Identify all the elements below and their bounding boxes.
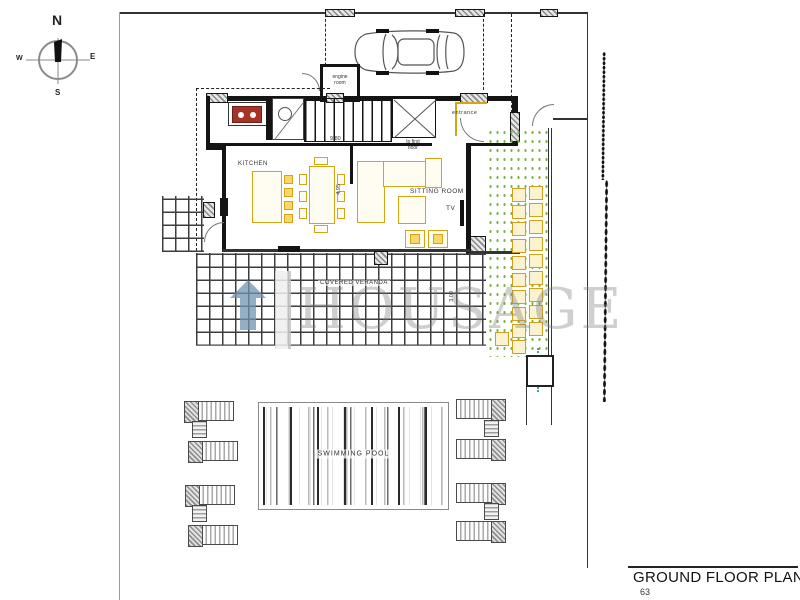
- window-sill: [220, 198, 228, 216]
- side-door-arc: [204, 222, 224, 242]
- compass-east-label: E: [90, 52, 95, 61]
- carport-dashed-edge: [483, 14, 484, 90]
- plot-boundary-right: [587, 12, 588, 568]
- kitchen-island: [252, 171, 282, 223]
- dining-chair: [299, 191, 307, 202]
- sofa: [357, 161, 385, 223]
- side-table: [484, 503, 499, 520]
- wc-closet: [272, 98, 304, 140]
- bar-stool: [284, 175, 293, 184]
- sofa-chaise: [425, 158, 442, 188]
- drawing-title: GROUND FLOOR PLAN: [633, 569, 800, 586]
- car-icon: [352, 26, 467, 78]
- house-wall-left-upper: [206, 96, 210, 150]
- covered-veranda: [196, 253, 486, 346]
- stair-landing: [392, 98, 436, 138]
- swimming-pool-label: SWIMMING POOL: [315, 450, 393, 459]
- sun-lounger: [456, 483, 506, 503]
- sun-lounger: [456, 521, 506, 541]
- wall-hatch-segment: [203, 202, 215, 218]
- dining-chair: [337, 208, 345, 219]
- veranda-pillar: [374, 251, 388, 265]
- garden-gate: [526, 355, 554, 387]
- swimming-pool: SWIMMING POOL: [258, 402, 449, 510]
- hedge-dotted-line: [601, 52, 605, 180]
- sun-lounger: [188, 525, 238, 545]
- sun-lounger: [456, 439, 506, 459]
- armchair: [405, 230, 425, 248]
- corner-pillar: [470, 236, 486, 252]
- hedge-dotted-line: [603, 180, 608, 402]
- fence-line: [548, 128, 552, 358]
- title-rule: [628, 566, 798, 568]
- setback-dashed-line: [196, 88, 330, 89]
- sofa: [383, 161, 427, 187]
- plot-boundary-left: [119, 12, 120, 600]
- covered-veranda-label: COVERED VERANDA: [318, 280, 390, 286]
- house-front-glazing: [222, 249, 470, 252]
- side-patio-tiles: [162, 196, 204, 252]
- dimension-kitchen-depth: 4.95: [336, 184, 342, 195]
- pool-water: SWIMMING POOL: [263, 407, 444, 505]
- dimension-house-width: 9.80: [330, 136, 341, 142]
- veranda-bottom-edge: [196, 345, 486, 346]
- tv-unit: [460, 200, 464, 226]
- compass-north-label: N: [52, 12, 62, 28]
- wall-hatch-segment: [540, 9, 558, 17]
- sun-lounger: [185, 485, 235, 505]
- dining-chair: [314, 225, 328, 233]
- coffee-table: [398, 196, 426, 224]
- engine-room-label: engine room: [323, 75, 357, 86]
- entrance-door-arc: [460, 118, 484, 142]
- bar-stool: [284, 214, 293, 223]
- compass-west-label: W: [16, 55, 23, 62]
- side-table: [192, 421, 207, 438]
- to-first-floor-label: to first floor: [396, 140, 430, 151]
- dining-table: [309, 166, 335, 224]
- fence-line: [526, 387, 552, 425]
- wall-hatch-segment: [455, 9, 485, 17]
- kitchen-label: KITCHEN: [238, 161, 268, 167]
- side-wall-line: [553, 118, 588, 120]
- side-table: [484, 420, 499, 437]
- entrance-gold-jamb: [455, 102, 457, 136]
- wall-hatch-segment: [325, 9, 355, 17]
- partition-wall: [350, 146, 353, 184]
- compass-south-label: S: [55, 88, 60, 97]
- sun-lounger: [456, 399, 506, 419]
- side-table: [192, 505, 207, 522]
- dining-chair: [299, 174, 307, 185]
- stairs: [304, 98, 392, 142]
- tv-label: TV: [446, 205, 455, 212]
- floor-plan-canvas: N E W S engine room: [0, 0, 800, 600]
- bar-stool: [284, 201, 293, 210]
- stove-icon: [232, 106, 262, 123]
- dining-chair: [299, 208, 307, 219]
- sitting-room-label: SITTING ROOM: [410, 188, 464, 195]
- area-label: 63 s.m.: [640, 587, 657, 600]
- compass-rose: N E W S: [16, 12, 100, 104]
- sun-lounger: [188, 441, 238, 461]
- door-threshold: [278, 246, 300, 252]
- dining-chair: [314, 157, 328, 165]
- armchair: [428, 230, 448, 248]
- sun-lounger: [184, 401, 234, 421]
- exterior-door-arc: [532, 104, 554, 126]
- entrance-label: entrance: [452, 110, 477, 116]
- entrance-gold-head: [455, 102, 487, 104]
- bar-stool: [284, 188, 293, 197]
